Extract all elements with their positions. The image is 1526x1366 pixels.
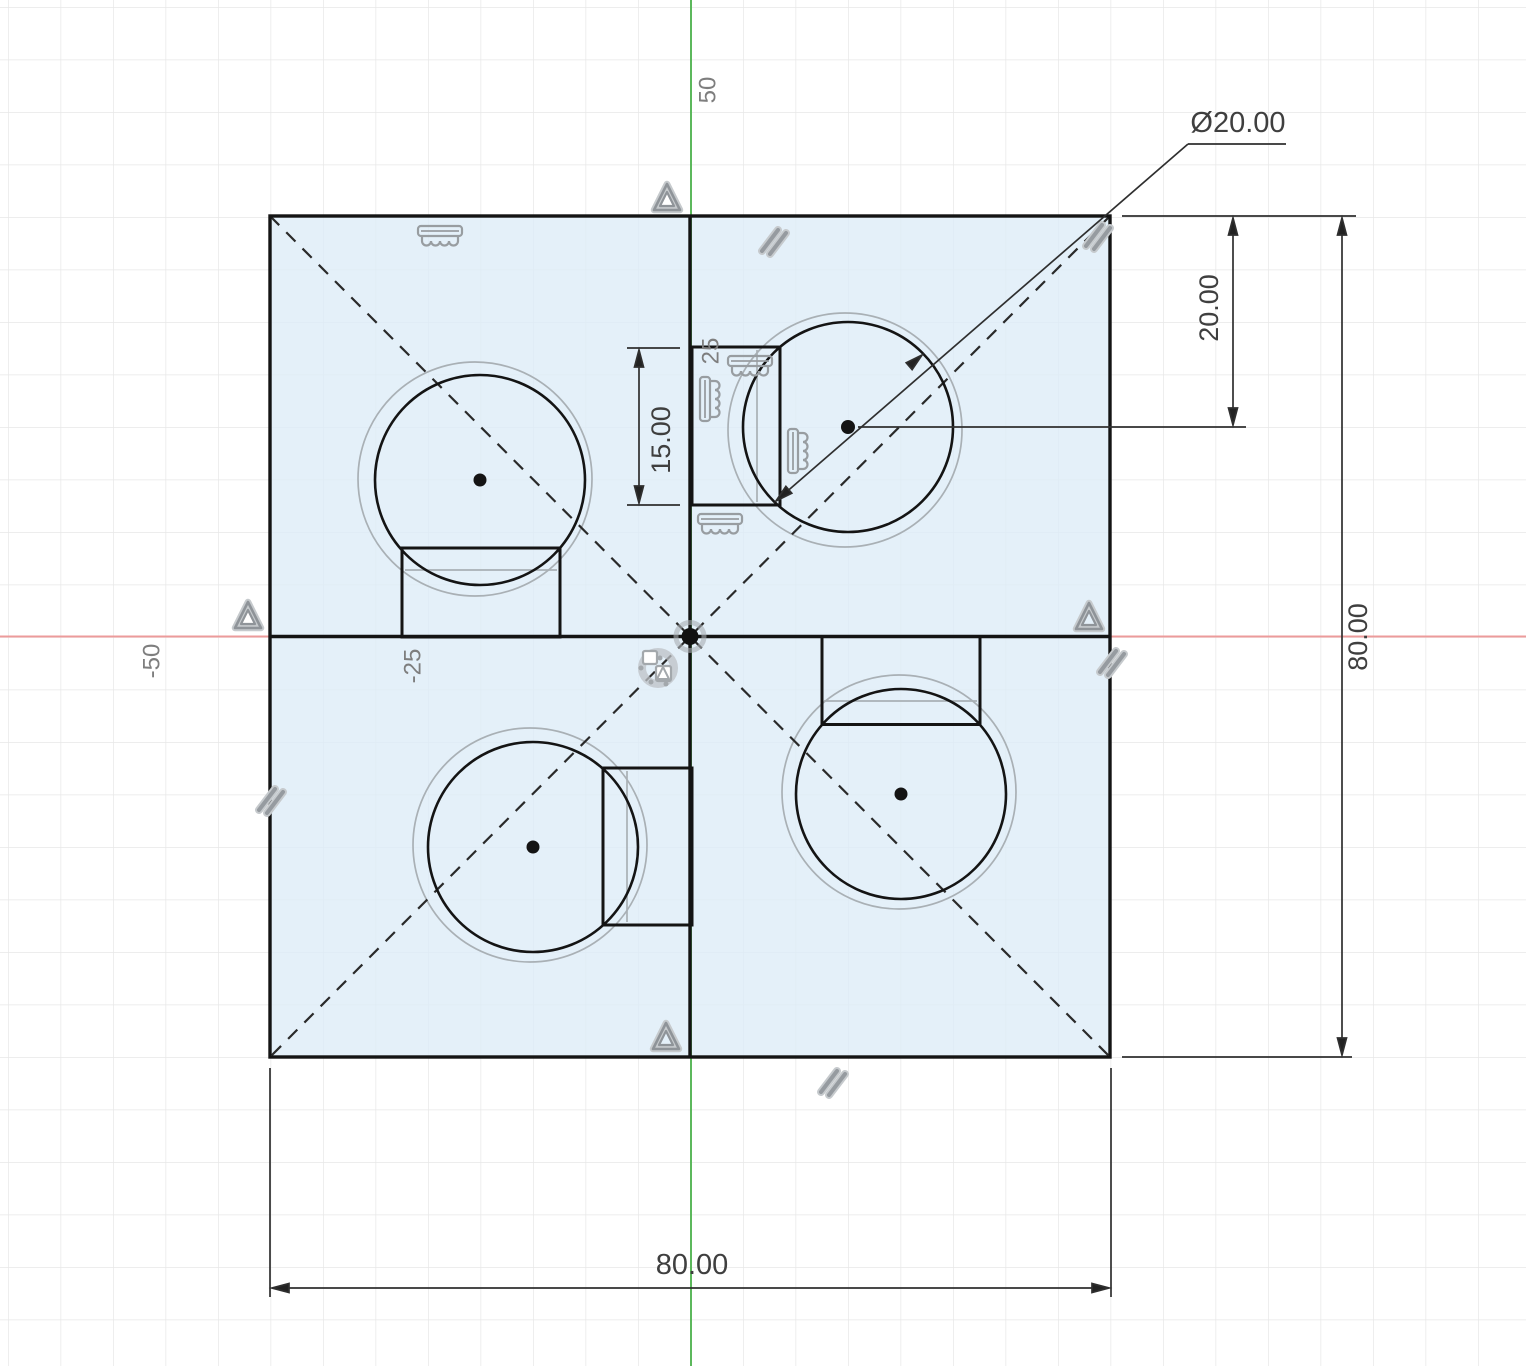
cluster-dot [639, 666, 644, 671]
origin-point[interactable] [682, 628, 699, 645]
diameter-dimension-text[interactable]: Ø20.00 [1190, 107, 1285, 139]
grid-label-y25: 25 [698, 338, 725, 365]
center-point-lower-right[interactable] [895, 788, 908, 801]
cluster-dot [649, 680, 654, 685]
grid-label-xneg25: -25 [400, 649, 427, 684]
cluster-dot [664, 682, 669, 687]
cluster-dot [658, 656, 663, 661]
height-dimension-text[interactable]: 80.00 [1343, 603, 1373, 671]
center-point-upper-left[interactable] [474, 474, 487, 487]
grid-label-y50: 50 [695, 77, 722, 104]
sketch-canvas: Ø20.00 20.00 80.00 15.00 80.00 50 25 -50… [0, 0, 1526, 1366]
center-point-upper-right[interactable] [841, 420, 855, 434]
coincident-constraint-cluster-icon[interactable] [639, 651, 675, 687]
width-dimension-text[interactable]: 80.00 [656, 1249, 729, 1281]
tab-dimension-text[interactable]: 15.00 [646, 406, 676, 474]
offset-dimension-text[interactable]: 20.00 [1194, 274, 1224, 342]
sketch-svg: Ø20.00 20.00 80.00 15.00 80.00 50 25 -50… [0, 0, 1526, 1366]
center-point-lower-left[interactable] [527, 841, 540, 854]
cluster-square-1 [643, 651, 657, 664]
grid-label-xneg50: -50 [139, 644, 166, 679]
